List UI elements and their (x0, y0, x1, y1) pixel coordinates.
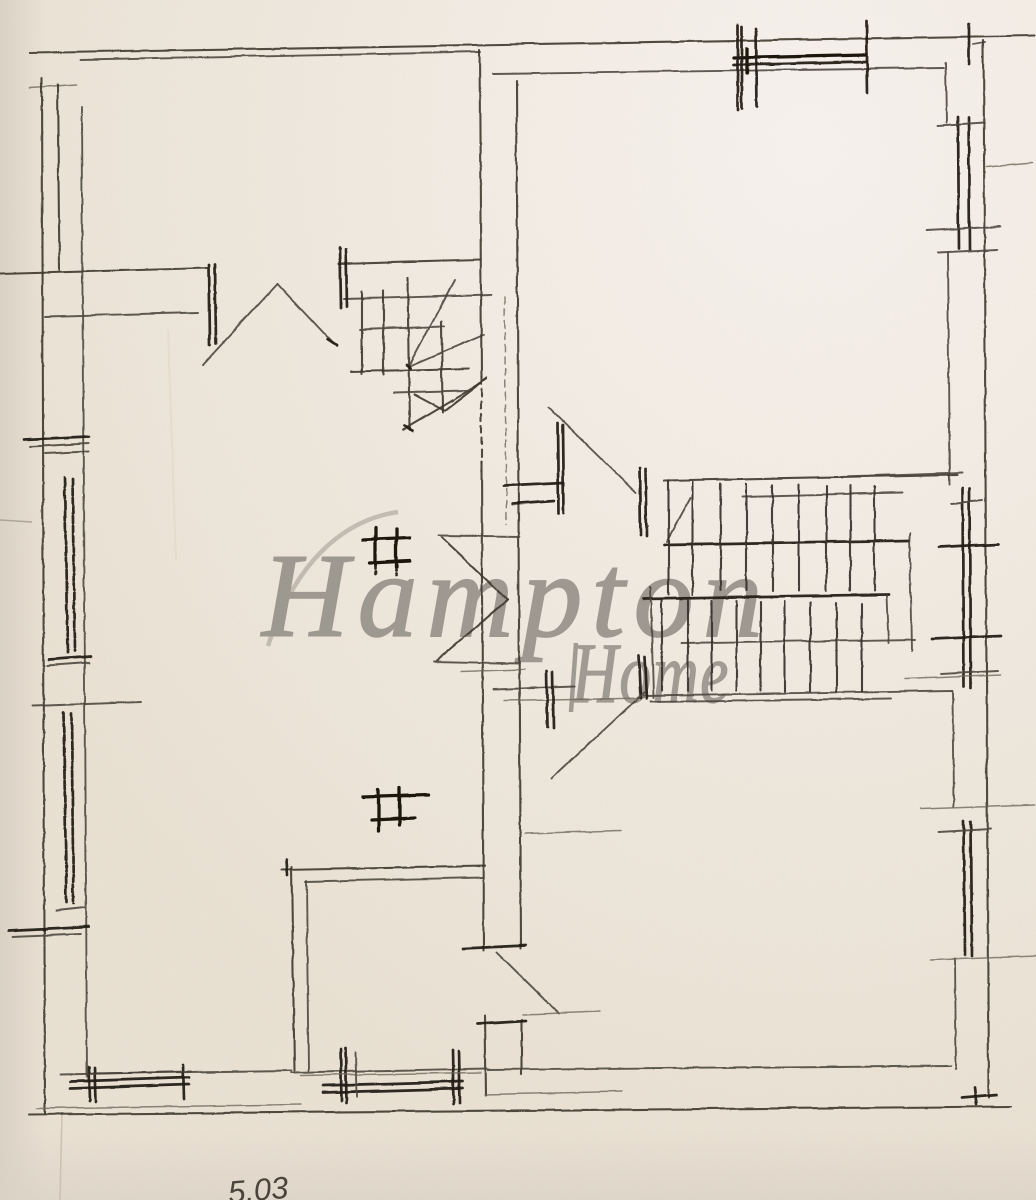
svg-text:5,03: 5,03 (227, 1170, 290, 1200)
svg-text:Home: Home (571, 627, 730, 721)
